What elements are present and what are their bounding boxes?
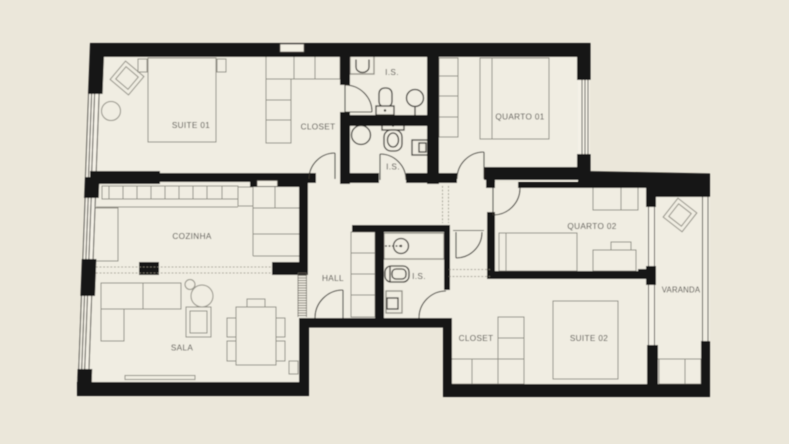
svg-text:SUITE 02: SUITE 02 xyxy=(570,334,608,343)
svg-text:VARANDA: VARANDA xyxy=(662,286,701,295)
svg-text:QUARTO 01: QUARTO 01 xyxy=(495,113,544,122)
svg-text:I.S.: I.S. xyxy=(412,272,426,281)
svg-text:COZINHA: COZINHA xyxy=(172,232,211,241)
svg-text:QUARTO 02: QUARTO 02 xyxy=(567,222,616,231)
svg-text:I.S.: I.S. xyxy=(385,68,399,77)
svg-text:HALL: HALL xyxy=(322,274,344,283)
svg-text:CLOSET: CLOSET xyxy=(459,334,494,343)
svg-text:I.S.: I.S. xyxy=(386,163,400,172)
svg-text:SUITE 01: SUITE 01 xyxy=(172,121,210,130)
svg-text:CLOSET: CLOSET xyxy=(301,123,336,132)
svg-text:SALA: SALA xyxy=(171,344,194,353)
